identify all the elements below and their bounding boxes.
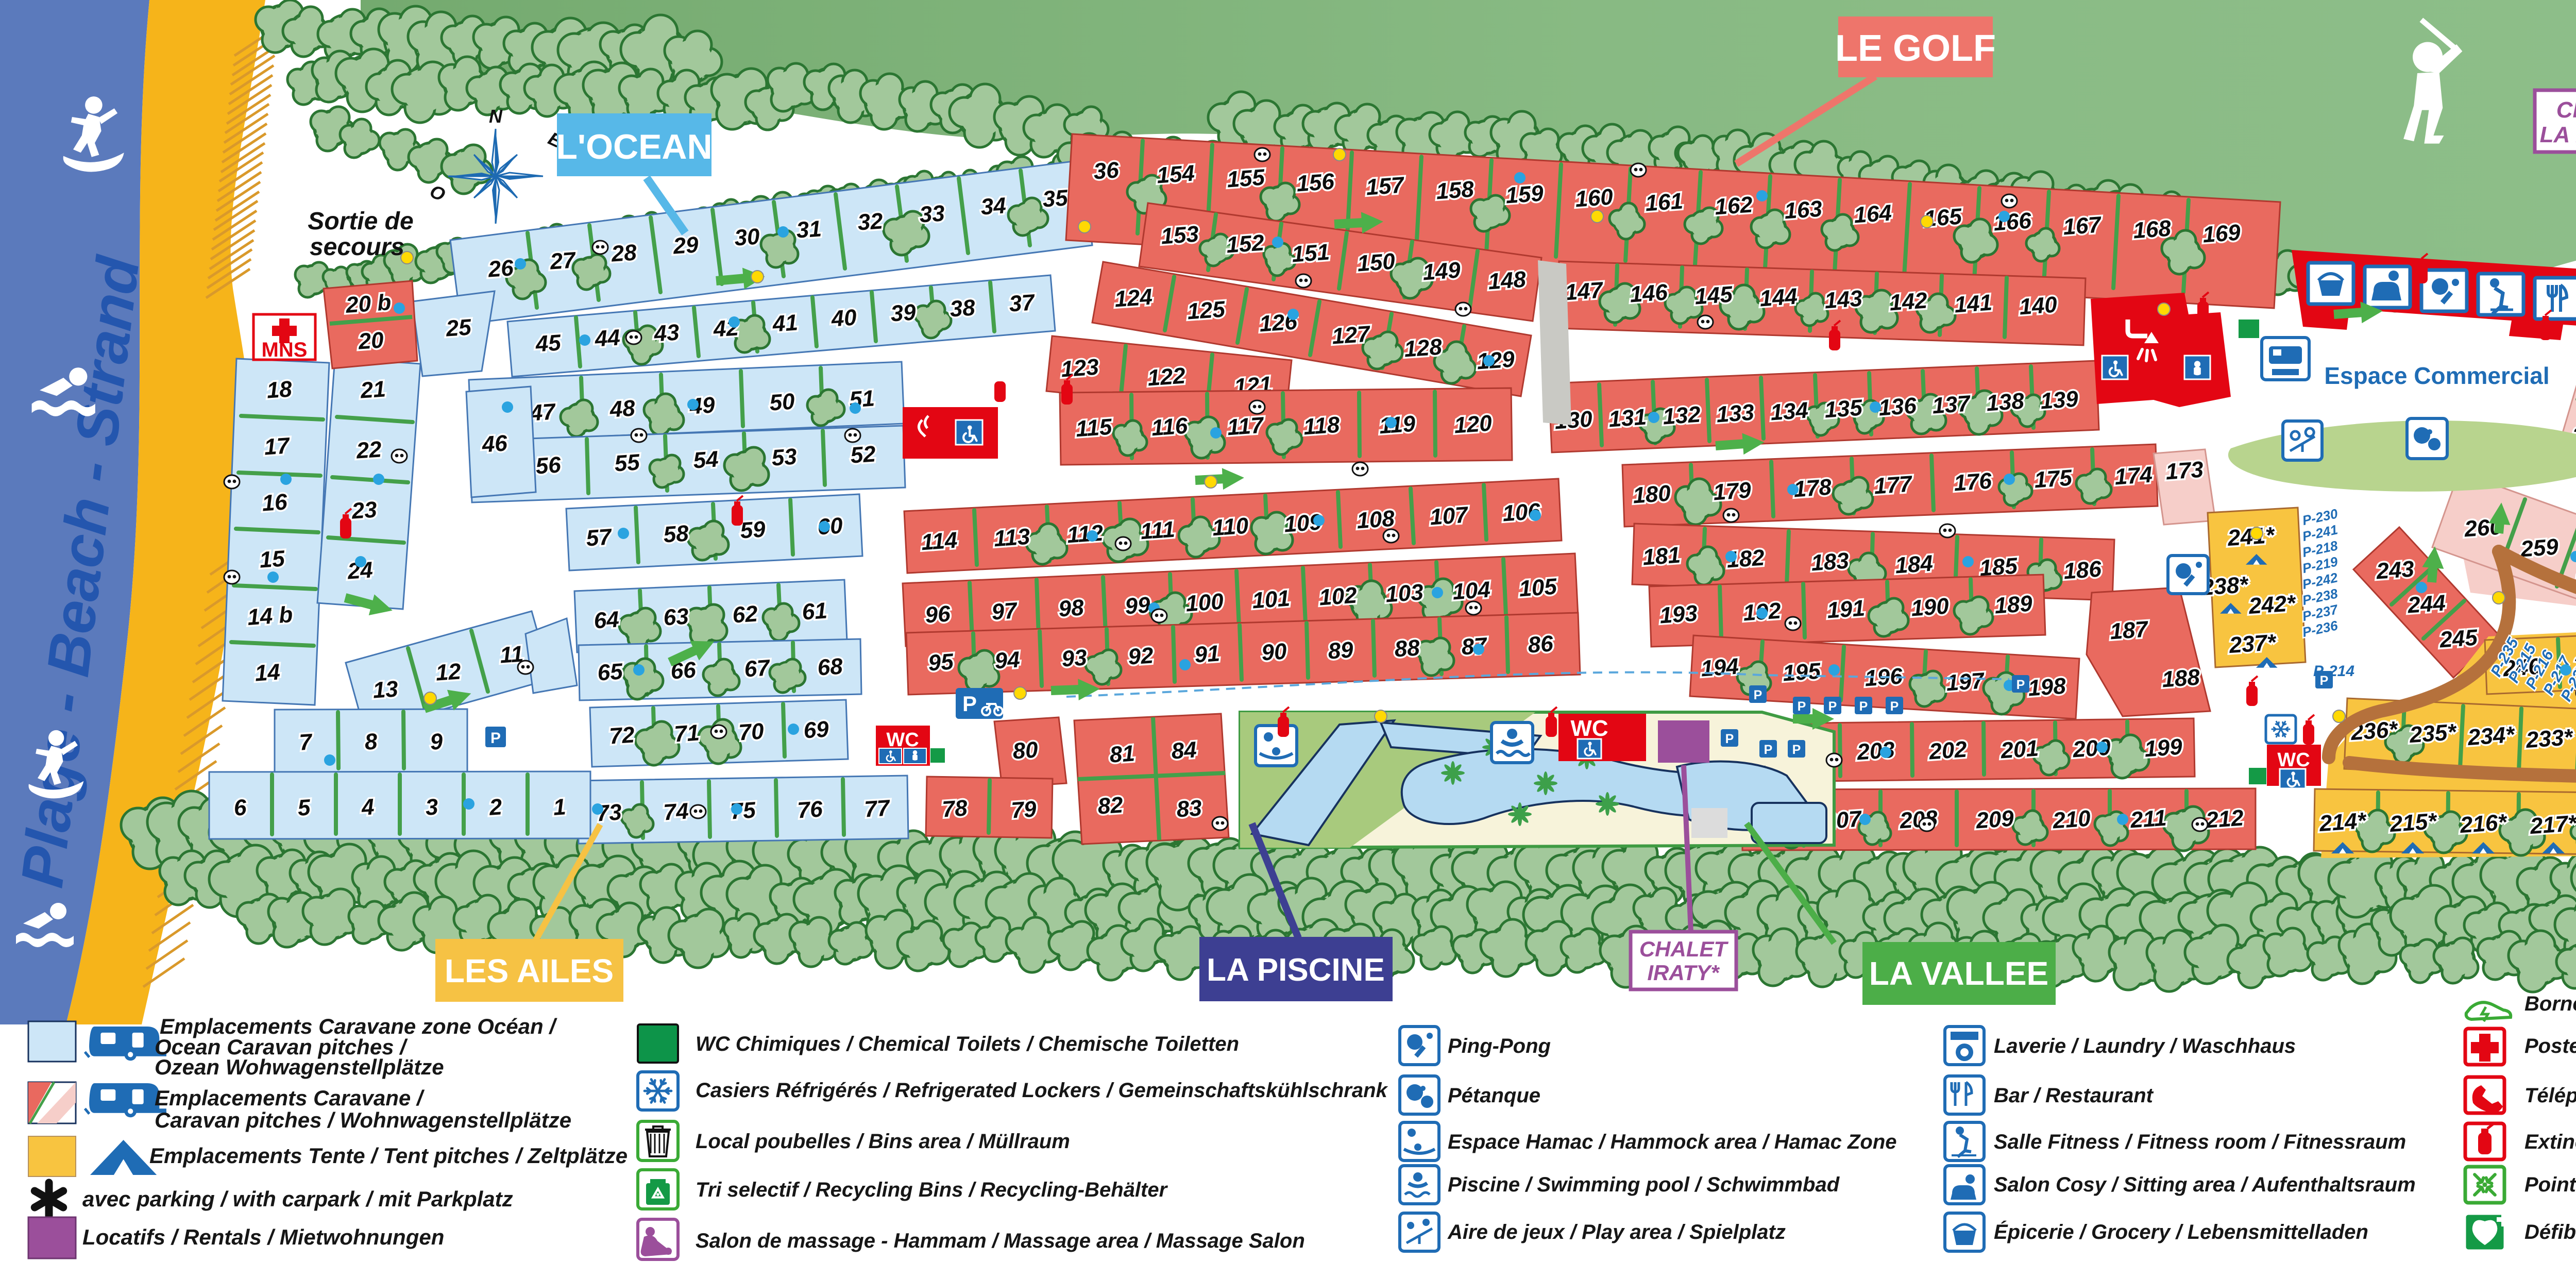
- svg-text:P: P: [1754, 688, 1762, 702]
- svg-text:WC: WC: [1570, 716, 1608, 741]
- svg-text:201: 201: [1999, 735, 2040, 763]
- svg-text:195: 195: [1782, 658, 1822, 686]
- svg-text:134: 134: [1770, 397, 1809, 425]
- svg-text:162: 162: [1714, 192, 1754, 220]
- svg-text:59: 59: [739, 516, 767, 543]
- svg-text:115: 115: [1075, 414, 1113, 442]
- svg-text:15: 15: [259, 546, 286, 573]
- svg-text:187: 187: [2109, 616, 2150, 644]
- svg-text:P: P: [1890, 699, 1899, 714]
- svg-text:176: 176: [1953, 468, 1993, 496]
- svg-text:20 b: 20 b: [344, 290, 392, 318]
- svg-text:148: 148: [1487, 266, 1527, 294]
- svg-text:54: 54: [692, 446, 719, 473]
- svg-text:P: P: [1725, 732, 1734, 746]
- svg-text:137: 137: [1931, 391, 1972, 418]
- svg-text:WC: WC: [2277, 749, 2310, 771]
- svg-text:46: 46: [481, 430, 509, 457]
- svg-text:178: 178: [1793, 474, 1833, 502]
- svg-text:25: 25: [445, 314, 472, 341]
- svg-text:156: 156: [1296, 169, 1335, 196]
- svg-text:77: 77: [863, 795, 892, 822]
- svg-text:63: 63: [663, 603, 689, 630]
- svg-text:14: 14: [254, 659, 281, 686]
- svg-text:32: 32: [857, 208, 884, 235]
- svg-text:LE GOLF: LE GOLF: [1835, 28, 1996, 69]
- svg-text:78: 78: [941, 795, 969, 822]
- svg-text:181: 181: [1642, 542, 1682, 570]
- svg-text:secours: secours: [310, 233, 404, 261]
- svg-text:31: 31: [795, 216, 822, 243]
- svg-text:21: 21: [359, 376, 386, 403]
- svg-text:37: 37: [1008, 290, 1037, 316]
- svg-text:97: 97: [991, 598, 1019, 625]
- svg-text:P: P: [1798, 699, 1806, 714]
- svg-text:84: 84: [1171, 737, 1197, 764]
- svg-text:35: 35: [1042, 185, 1069, 212]
- svg-text:217*: 217*: [2529, 811, 2576, 839]
- svg-text:144: 144: [1759, 283, 1799, 311]
- svg-text:110: 110: [1211, 513, 1249, 541]
- svg-text:155: 155: [1226, 164, 1266, 192]
- svg-text:116: 116: [1150, 413, 1189, 441]
- svg-text:136: 136: [1878, 393, 1918, 421]
- svg-text:105: 105: [1518, 574, 1558, 601]
- svg-text:86: 86: [1527, 631, 1554, 658]
- svg-text:68: 68: [817, 653, 844, 680]
- svg-text:158: 158: [1435, 176, 1475, 204]
- svg-text:112: 112: [1066, 520, 1104, 548]
- svg-text:94: 94: [994, 647, 1021, 674]
- svg-text:23: 23: [350, 497, 378, 524]
- svg-text:76: 76: [796, 796, 824, 823]
- svg-text:197: 197: [1945, 668, 1986, 696]
- svg-text:199: 199: [2144, 734, 2183, 762]
- svg-text:190: 190: [1910, 593, 1950, 621]
- svg-text:180: 180: [1632, 480, 1672, 508]
- svg-text:96: 96: [924, 601, 952, 628]
- svg-text:149: 149: [1422, 257, 1462, 285]
- svg-text:177: 177: [1873, 471, 1914, 499]
- svg-text:117: 117: [1226, 412, 1265, 440]
- svg-text:1: 1: [552, 794, 567, 820]
- svg-text:LES AILES: LES AILES: [445, 952, 614, 989]
- svg-text:52: 52: [850, 441, 877, 468]
- svg-text:154: 154: [1156, 160, 1196, 188]
- svg-text:6: 6: [233, 795, 247, 821]
- svg-text:36: 36: [1093, 157, 1120, 184]
- svg-text:100: 100: [1185, 588, 1225, 616]
- svg-text:139: 139: [2040, 386, 2079, 414]
- svg-text:89: 89: [1327, 637, 1354, 664]
- svg-text:90: 90: [1261, 638, 1288, 665]
- svg-text:188: 188: [2161, 664, 2201, 692]
- svg-text:38: 38: [949, 295, 976, 322]
- svg-text:184: 184: [1894, 550, 1934, 578]
- svg-text:9: 9: [429, 729, 444, 755]
- svg-text:244: 244: [2406, 590, 2447, 618]
- svg-text:243: 243: [2375, 556, 2415, 584]
- svg-text:13: 13: [372, 676, 399, 703]
- svg-text:17: 17: [263, 433, 292, 460]
- svg-text:39: 39: [890, 299, 917, 326]
- svg-text:189: 189: [1994, 591, 2033, 618]
- svg-text:28: 28: [610, 240, 638, 266]
- svg-text:153: 153: [1160, 221, 1200, 249]
- svg-text:193: 193: [1659, 600, 1699, 628]
- svg-text:102: 102: [1318, 582, 1358, 610]
- svg-text:P: P: [1764, 743, 1773, 757]
- svg-text:151: 151: [1291, 239, 1331, 267]
- svg-text:44: 44: [594, 325, 621, 351]
- svg-text:82: 82: [1097, 792, 1124, 819]
- svg-text:18: 18: [266, 376, 293, 403]
- svg-text:Sortie de: Sortie de: [308, 208, 413, 235]
- svg-text:LA PISCINE: LA PISCINE: [1207, 952, 1385, 988]
- svg-text:4: 4: [360, 794, 375, 820]
- svg-text:83: 83: [1176, 795, 1202, 822]
- svg-text:135: 135: [1824, 395, 1863, 423]
- svg-text:101: 101: [1251, 585, 1291, 613]
- svg-text:65: 65: [597, 659, 624, 685]
- svg-text:161: 161: [1645, 188, 1684, 216]
- svg-text:111: 111: [1140, 517, 1176, 545]
- svg-text:212: 212: [2205, 805, 2245, 833]
- svg-text:P: P: [1859, 699, 1868, 714]
- svg-text:159: 159: [1505, 180, 1545, 208]
- svg-text:45: 45: [534, 330, 562, 357]
- svg-text:98: 98: [1058, 595, 1085, 621]
- svg-text:173: 173: [2165, 457, 2205, 484]
- svg-text:107: 107: [1429, 502, 1470, 530]
- svg-text:30: 30: [734, 224, 761, 250]
- svg-text:174: 174: [2114, 462, 2154, 490]
- svg-text:123: 123: [1060, 354, 1100, 382]
- svg-text:8: 8: [364, 729, 378, 755]
- svg-text:168: 168: [2132, 215, 2172, 243]
- svg-text:234*: 234*: [2466, 722, 2516, 750]
- svg-text:58: 58: [663, 520, 690, 547]
- svg-text:CHALET: CHALET: [2556, 97, 2576, 123]
- svg-text:133: 133: [1716, 399, 1755, 427]
- svg-text:Espace Commercial: Espace Commercial: [2324, 362, 2549, 389]
- svg-text:132: 132: [1662, 401, 1702, 429]
- svg-text:MNS: MNS: [262, 339, 308, 361]
- svg-text:20: 20: [357, 327, 385, 354]
- svg-text:43: 43: [653, 320, 680, 346]
- svg-text:104: 104: [1452, 577, 1492, 604]
- svg-text:118: 118: [1302, 412, 1341, 440]
- svg-text:157: 157: [1365, 172, 1406, 200]
- svg-text:122: 122: [1147, 363, 1187, 391]
- svg-text:179: 179: [1713, 477, 1752, 505]
- svg-text:53: 53: [771, 444, 798, 470]
- svg-text:150: 150: [1357, 248, 1396, 276]
- svg-text:166: 166: [1993, 208, 2032, 236]
- svg-text:127: 127: [1331, 321, 1372, 349]
- svg-text:119: 119: [1378, 411, 1416, 439]
- svg-text:40: 40: [830, 305, 858, 331]
- svg-text:114: 114: [920, 528, 958, 556]
- svg-text:131: 131: [1608, 404, 1648, 432]
- svg-text:CHALET: CHALET: [1639, 937, 1729, 961]
- svg-text:N: N: [489, 106, 503, 127]
- svg-text:140: 140: [2019, 292, 2058, 320]
- svg-text:80: 80: [1012, 737, 1039, 764]
- svg-text:128: 128: [1403, 334, 1443, 362]
- svg-text:147: 147: [1564, 277, 1605, 305]
- svg-text:69: 69: [803, 716, 830, 743]
- svg-text:145: 145: [1694, 281, 1734, 309]
- svg-text:27: 27: [549, 247, 578, 275]
- svg-text:79: 79: [1010, 796, 1038, 823]
- svg-text:215*: 215*: [2388, 809, 2438, 837]
- svg-text:92: 92: [1127, 643, 1155, 669]
- svg-text:237*: 237*: [2228, 630, 2278, 658]
- svg-text:191: 191: [1826, 595, 1866, 623]
- svg-text:120: 120: [1453, 410, 1493, 438]
- svg-text:233*: 233*: [2524, 725, 2574, 753]
- svg-text:95: 95: [927, 649, 955, 676]
- svg-text:64: 64: [593, 607, 620, 633]
- svg-text:LA VALLEE: LA VALLEE: [1869, 955, 2048, 992]
- svg-text:P: P: [1792, 743, 1801, 757]
- svg-text:214*: 214*: [2318, 808, 2368, 836]
- svg-text:235*: 235*: [2408, 719, 2458, 748]
- svg-text:160: 160: [1574, 184, 1614, 212]
- svg-text:124: 124: [1114, 284, 1154, 312]
- svg-text:P: P: [2320, 674, 2329, 688]
- svg-text:L'OCEAN: L'OCEAN: [556, 127, 712, 166]
- svg-text:169: 169: [2202, 220, 2242, 247]
- svg-text:29: 29: [672, 232, 700, 259]
- svg-text:67: 67: [743, 655, 772, 682]
- svg-text:99: 99: [1124, 592, 1151, 619]
- svg-text:57: 57: [585, 524, 614, 551]
- svg-text:2: 2: [488, 794, 503, 820]
- svg-text:LA RHUNE*: LA RHUNE*: [2540, 122, 2576, 147]
- svg-text:242*: 242*: [2247, 591, 2297, 619]
- svg-text:198: 198: [2027, 673, 2067, 701]
- svg-text:175: 175: [2033, 465, 2073, 493]
- svg-text:48: 48: [608, 395, 636, 422]
- svg-text:146: 146: [1629, 279, 1669, 307]
- svg-text:70: 70: [738, 718, 765, 745]
- svg-text:56: 56: [535, 452, 562, 479]
- svg-text:71: 71: [673, 720, 700, 747]
- svg-text:210: 210: [2052, 805, 2092, 833]
- svg-text:72: 72: [608, 722, 636, 749]
- svg-text:81: 81: [1109, 741, 1136, 767]
- svg-text:P: P: [1828, 699, 1837, 714]
- svg-text:245: 245: [2438, 625, 2479, 652]
- svg-text:211: 211: [2129, 805, 2167, 833]
- svg-text:88: 88: [1394, 635, 1421, 662]
- svg-text:202: 202: [1928, 736, 1968, 764]
- svg-text:14 b: 14 b: [246, 602, 293, 630]
- svg-text:26: 26: [487, 255, 515, 282]
- svg-text:186: 186: [2063, 556, 2103, 584]
- svg-text:16: 16: [261, 489, 289, 516]
- svg-text:34: 34: [980, 193, 1007, 220]
- svg-text:113: 113: [993, 524, 1030, 552]
- svg-text:93: 93: [1061, 645, 1088, 671]
- svg-text:142: 142: [1889, 288, 1928, 315]
- svg-text:33: 33: [919, 200, 945, 227]
- svg-text:41: 41: [771, 310, 799, 337]
- svg-text:125: 125: [1187, 296, 1226, 324]
- svg-text:138: 138: [1986, 388, 2025, 416]
- svg-text:194: 194: [1700, 653, 1740, 681]
- svg-text:164: 164: [1853, 200, 1893, 228]
- svg-text:5: 5: [297, 795, 311, 821]
- svg-text:141: 141: [1954, 290, 1993, 317]
- svg-text:163: 163: [1784, 196, 1823, 224]
- svg-text:129: 129: [1476, 346, 1516, 374]
- svg-text:216*: 216*: [2459, 810, 2509, 838]
- svg-text:183: 183: [1810, 548, 1850, 576]
- svg-text:50: 50: [769, 389, 796, 415]
- svg-text:74: 74: [663, 798, 689, 825]
- svg-text:91: 91: [1194, 641, 1221, 667]
- svg-text:152: 152: [1226, 230, 1265, 258]
- svg-text:62: 62: [732, 601, 759, 628]
- svg-text:61: 61: [801, 598, 828, 625]
- svg-text:IRATY*: IRATY*: [1647, 961, 1720, 985]
- svg-text:22: 22: [355, 436, 383, 463]
- svg-text:WC: WC: [886, 729, 919, 751]
- svg-text:209: 209: [1975, 805, 2015, 833]
- svg-text:103: 103: [1385, 579, 1425, 607]
- svg-text:143: 143: [1824, 285, 1863, 313]
- svg-text:55: 55: [614, 449, 641, 476]
- svg-text:167: 167: [2062, 212, 2103, 240]
- svg-text:12: 12: [435, 659, 462, 685]
- svg-text:3: 3: [425, 794, 439, 820]
